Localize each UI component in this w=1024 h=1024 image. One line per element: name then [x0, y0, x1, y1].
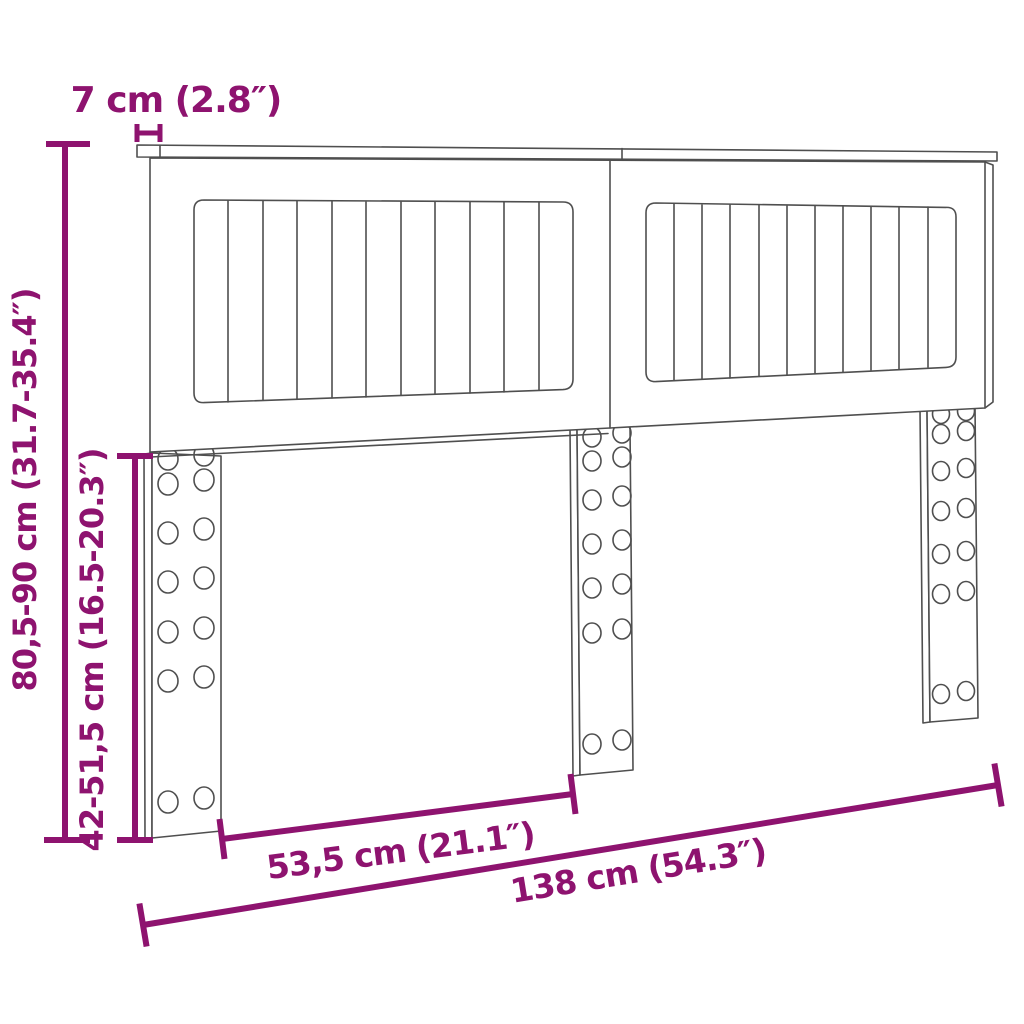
- headboard-drawing: [137, 145, 997, 839]
- dim-cap-width-marker: [137, 124, 160, 142]
- face-right-edge: [985, 162, 993, 408]
- right-leg-face: [927, 405, 978, 722]
- left-leg-face: [152, 453, 221, 838]
- dim-half-width-label: 53,5 cm (21.1″): [264, 814, 536, 887]
- left-leg-side: [144, 453, 152, 839]
- left-leg: [144, 444, 221, 839]
- middle-leg: [570, 423, 633, 776]
- right-panel-recess: [646, 203, 956, 382]
- headboard-dimension-diagram: 7 cm (2.8″) 80,5-90 cm (31.7-35.4″) 42-5…: [0, 0, 1024, 1024]
- headboard-face: [150, 158, 993, 457]
- diagram-canvas: 7 cm (2.8″) 80,5-90 cm (31.7-35.4″) 42-5…: [0, 0, 1024, 1024]
- dim-cap-width-label: 7 cm (2.8″): [71, 80, 282, 121]
- middle-leg-face: [577, 425, 633, 775]
- left-panel-recess: [194, 200, 573, 403]
- right-leg: [920, 402, 978, 724]
- dim-total-height-label: 80,5-90 cm (31.7-35.4″): [6, 288, 44, 691]
- dim-leg-height-label: 42-51,5 cm (16.5-20.3″): [73, 448, 111, 851]
